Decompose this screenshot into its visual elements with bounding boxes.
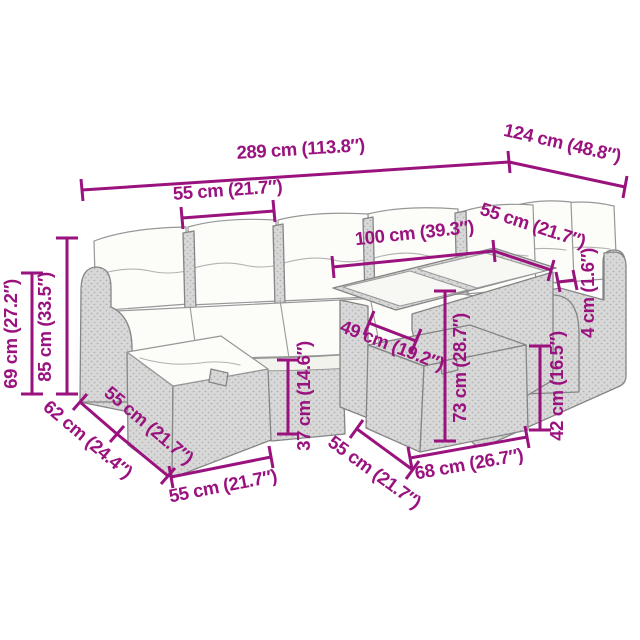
dim-label-back-height: 85 cm (33.5″) — [34, 272, 55, 382]
dim-label-seat-height: 37 cm (14.6″) — [293, 341, 314, 451]
back-frame-post — [183, 231, 196, 314]
dim-label-overall-length: 289 cm (113.8″) — [236, 134, 366, 163]
back-pillow — [188, 219, 278, 305]
dim-label-armrest-height: 69 cm (27.2″) — [0, 279, 21, 389]
dim-overall-length: 289 cm (113.8″) — [81, 134, 510, 201]
left-footstool — [127, 336, 271, 478]
dim-line-overall-depth — [509, 162, 627, 198]
dim-label-table-height: 73 cm (28.7″) — [449, 313, 470, 423]
dim-label-overall-depth: 124 cm (48.8″) — [502, 119, 623, 166]
back-frame-post — [273, 224, 285, 306]
dim-line-back-height — [56, 238, 78, 394]
dim-label-tabletop-thickness: 4 cm (1.6″) — [577, 248, 598, 338]
dim-back-height: 85 cm (33.5″) — [34, 238, 78, 394]
product-dimension-diagram: 289 cm (113.8″) 124 cm (48.8″) 55 cm (21… — [0, 0, 640, 640]
diagram-canvas: 289 cm (113.8″) 124 cm (48.8″) 55 cm (21… — [0, 0, 640, 640]
dim-label-stool-height: 42 cm (16.5″) — [546, 331, 567, 441]
dim-label-seat-module-width: 55 cm (21.7″) — [172, 175, 283, 204]
dim-overall-depth: 124 cm (48.8″) — [502, 119, 627, 198]
